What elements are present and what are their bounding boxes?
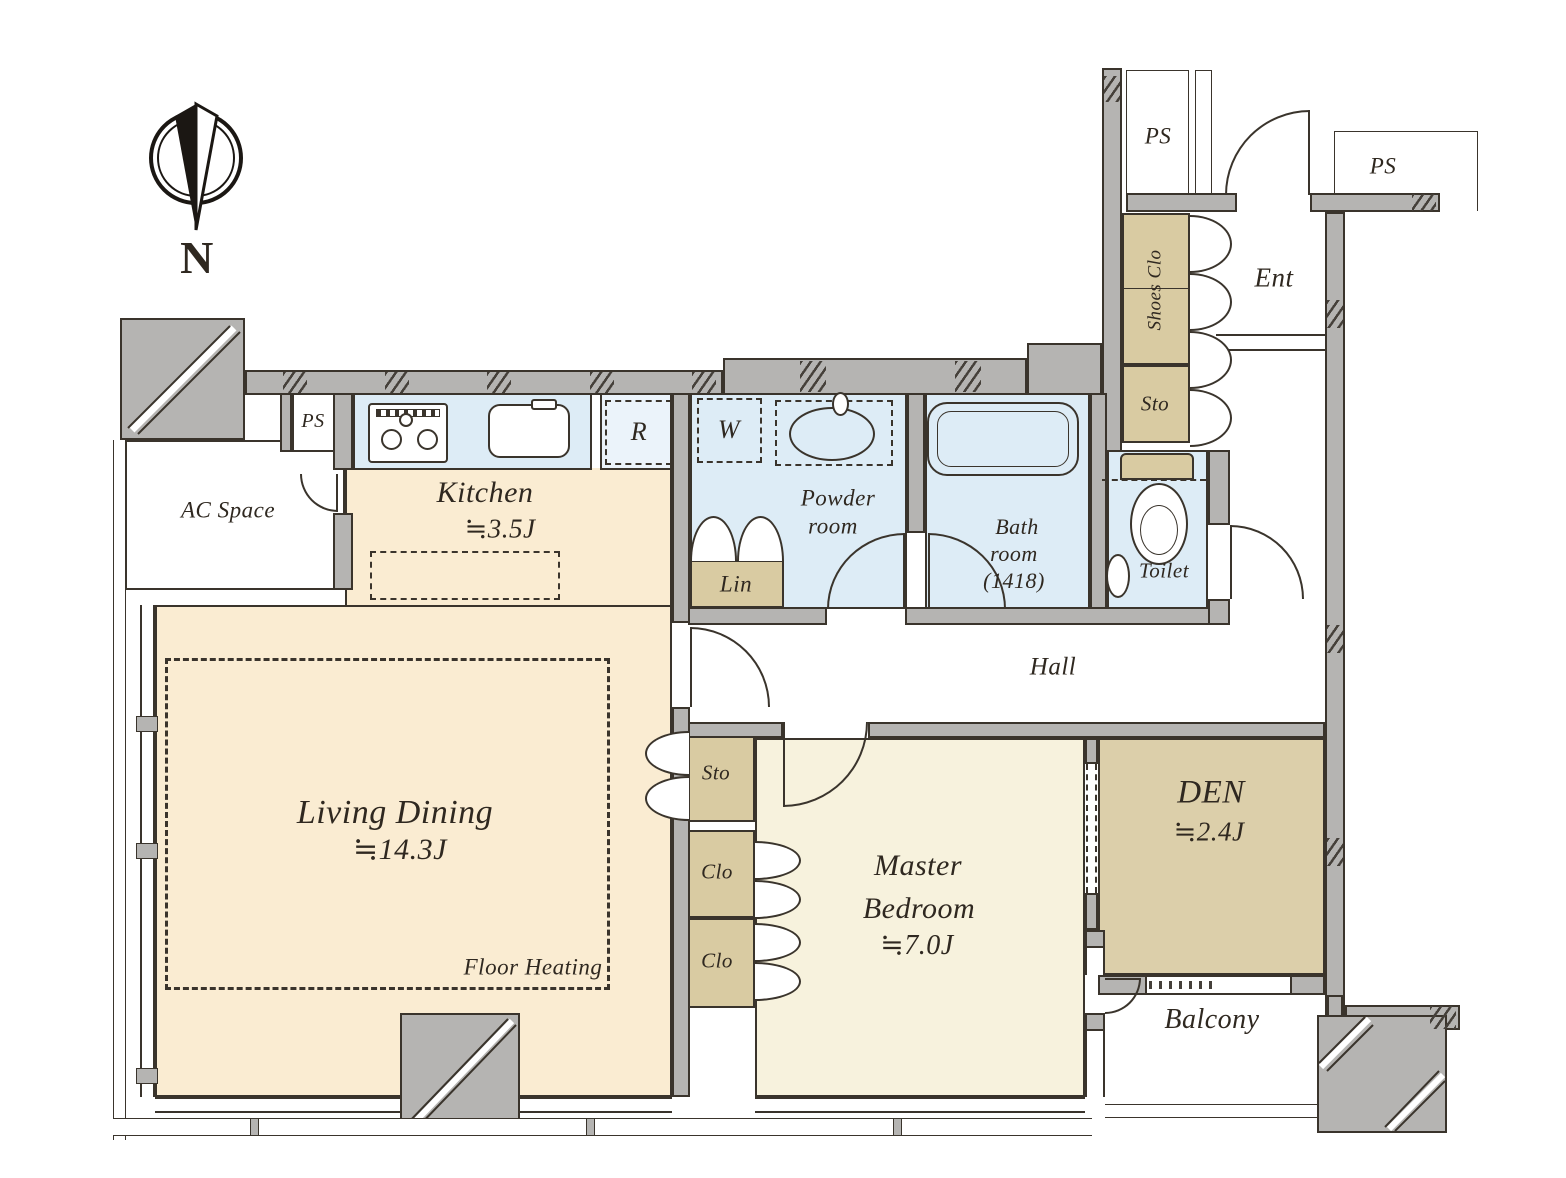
hatch-band-1	[283, 372, 307, 393]
rail-bottom-outer	[113, 1118, 1092, 1136]
hatch-band-3	[487, 372, 511, 393]
wall-partition-bottom	[1085, 893, 1098, 930]
stove-burner-2	[417, 429, 438, 450]
wall-wet-bottom-b	[905, 607, 1230, 625]
toilet-curtain-line	[1102, 479, 1206, 481]
living-dining-area-label: ≒14.3J	[353, 835, 447, 865]
shoes-closet-label: Shoes Clo	[1146, 249, 1165, 330]
ps-top-divider	[1188, 70, 1196, 193]
window-den-bottom	[1147, 975, 1290, 995]
balcony-label: Balcony	[1164, 1006, 1259, 1034]
entrance-door	[1225, 110, 1310, 195]
bath-size-label: (1418)	[983, 570, 1045, 592]
wall-ent-top-left	[1126, 193, 1237, 212]
bath-label-2: room	[990, 543, 1038, 565]
wall-right-outer	[1325, 212, 1345, 1030]
entry-storage-label: Sto	[1141, 394, 1169, 415]
compass-north-label: N	[180, 235, 214, 281]
toilet-label: Toilet	[1139, 561, 1189, 582]
balcony-bottom-edge	[1105, 1104, 1317, 1118]
faucet-icon	[832, 392, 849, 416]
wall-toilet-hall-b	[1208, 599, 1230, 625]
hatch-right-top	[1104, 76, 1120, 102]
floor-heating-label: Floor Heating	[464, 956, 603, 979]
hatch-band-4	[590, 372, 614, 393]
stove-burner-3	[399, 413, 413, 427]
powder-label-1: Powder	[801, 487, 876, 510]
shoes-closet-door-2	[1190, 273, 1232, 331]
wall-toilet-hall-a	[1208, 450, 1230, 525]
toilet-bowl-inner	[1140, 505, 1178, 555]
rail-post-b2	[586, 1118, 595, 1136]
hatch-ent-band	[1412, 194, 1436, 211]
wall-corner-block	[120, 318, 245, 440]
entry-storage-door-1	[1190, 331, 1232, 389]
rail-post-b3	[893, 1118, 902, 1136]
pillar-hatch	[402, 1015, 518, 1133]
balcony-door	[1105, 978, 1141, 1014]
stove-burner-1	[381, 429, 402, 450]
entry-storage-door-2	[1190, 389, 1232, 447]
ps-top-label: PS	[1145, 125, 1172, 148]
wall-kitchen-left-a	[333, 393, 353, 470]
window-bedroom-bottom	[755, 1097, 1085, 1113]
hall-storage-label: Sto	[702, 763, 730, 784]
rail-post-b1	[250, 1118, 259, 1136]
window-living-bottom-a	[155, 1097, 400, 1113]
bath-label-1: Bath	[995, 516, 1039, 538]
hatch-br-band	[1430, 1006, 1456, 1029]
rail-left-outer	[113, 440, 126, 1140]
shoes-closet-door-1	[1190, 215, 1232, 273]
master-label-1: Master	[874, 851, 962, 881]
wall-powder-bath	[907, 393, 925, 533]
window-den-hatch	[1149, 981, 1217, 989]
wall-top-band-b	[723, 358, 1027, 395]
hall-label: Hall	[1030, 655, 1076, 680]
window-bedroom-balcony-a	[1085, 948, 1105, 975]
washbasin-icon	[789, 407, 875, 461]
toilet-door	[1230, 525, 1304, 599]
wall-partition-sliding	[1086, 764, 1097, 893]
floor-plan: N PS PS PS Ent Shoes Clo Sto AC Space Ki…	[0, 0, 1566, 1178]
hatch-right-2	[1327, 625, 1343, 653]
block-bottom-right	[1317, 1015, 1447, 1133]
wall-hall-bedroom-a	[688, 722, 783, 738]
hatch-band-7	[955, 361, 981, 392]
genkan-step-1	[1216, 334, 1325, 336]
wall-partition-top	[1085, 738, 1098, 764]
block-br-hatch	[1319, 1017, 1445, 1131]
living-dining-label: Living Dining	[297, 796, 493, 830]
toilet-tank-icon	[1120, 453, 1194, 480]
ac-space-label: AC Space	[181, 499, 275, 522]
hatch-right-1	[1327, 300, 1343, 328]
wall-ps-kitchen-stub	[280, 393, 292, 452]
wall-wet-bottom-a	[688, 607, 827, 625]
fridge-label: R	[631, 419, 647, 445]
kitchen-label: Kitchen	[437, 478, 534, 508]
corner-block-hatch	[122, 320, 243, 438]
closet2-label: Clo	[701, 951, 733, 972]
sink-tab-icon	[531, 399, 557, 410]
linen-label: Lin	[720, 573, 752, 596]
wall-den-bottom-b	[1290, 975, 1325, 995]
window-living-bottom-b	[520, 1097, 672, 1113]
master-label-2: Bedroom	[863, 894, 975, 924]
pillar-bottom-center	[400, 1013, 520, 1135]
wall-top-band-c	[1027, 343, 1102, 395]
wall-hall-bedroom-b	[868, 722, 1325, 738]
wall-balcony-post-2	[1085, 1013, 1105, 1031]
window-post-l2	[136, 843, 158, 859]
wall-kitchen-left-b	[333, 513, 353, 590]
closet1-label: Clo	[701, 862, 733, 883]
powder-label-2: room	[808, 515, 858, 538]
window-post-l1	[136, 716, 158, 732]
hatch-right-3	[1327, 838, 1343, 866]
hatch-band-5	[692, 372, 716, 393]
wall-balcony-right-stub	[1327, 995, 1343, 1017]
ent-label: Ent	[1255, 265, 1294, 292]
wall-top-band-a	[245, 370, 723, 395]
ps-outside-label: PS	[1370, 155, 1397, 178]
den-area-label: ≒2.4J	[1174, 819, 1245, 846]
sink-icon	[488, 404, 570, 458]
hatch-band-2	[385, 372, 409, 393]
wall-balcony-post-1	[1085, 930, 1105, 948]
ps-kitchen-label: PS	[301, 411, 324, 431]
den-label: DEN	[1177, 777, 1245, 810]
wall-kitchen-powder	[672, 393, 690, 623]
bathtub-inner	[937, 411, 1069, 467]
window-post-l3	[136, 1068, 158, 1084]
master-area-label: ≒7.0J	[880, 932, 953, 960]
living-hall-door	[690, 627, 770, 707]
toilet-paper-icon	[1106, 554, 1130, 598]
window-bedroom-balcony-b	[1085, 1031, 1105, 1097]
kitchen-island-outline	[370, 551, 560, 600]
washer-label: W	[718, 417, 740, 443]
compass-icon	[138, 92, 256, 242]
kitchen-area-label: ≒3.5J	[465, 516, 536, 543]
hatch-band-6	[800, 361, 826, 392]
wall-bath-toilet	[1090, 393, 1107, 609]
genkan-step-2	[1216, 349, 1325, 351]
